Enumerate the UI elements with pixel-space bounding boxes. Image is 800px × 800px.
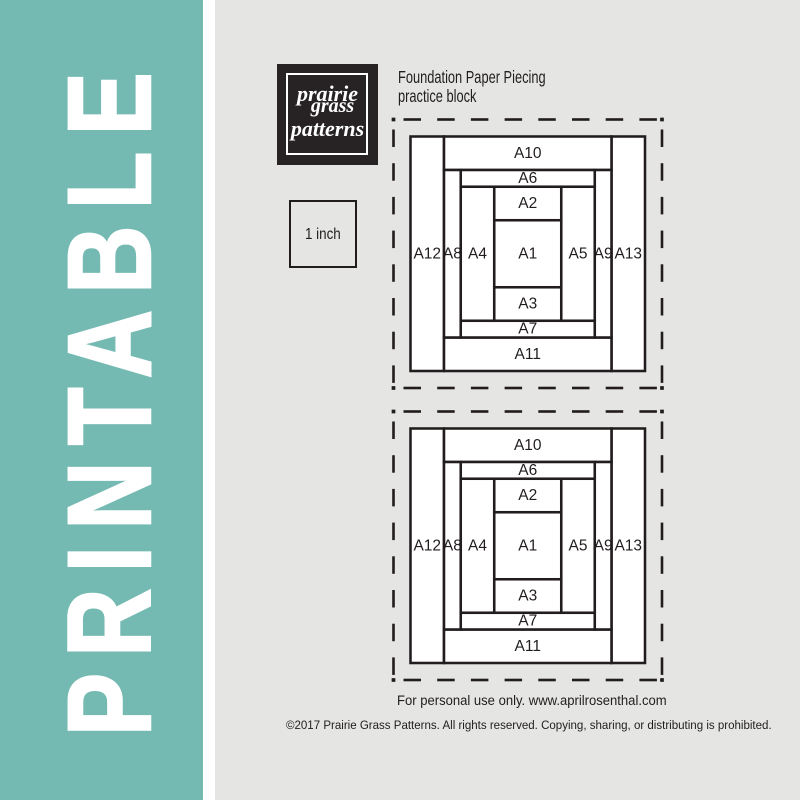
svg-text:A11: A11 bbox=[515, 346, 541, 363]
svg-text:A7: A7 bbox=[518, 612, 537, 629]
svg-text:A2: A2 bbox=[518, 195, 537, 212]
svg-text:A3: A3 bbox=[518, 296, 537, 313]
svg-text:A12: A12 bbox=[413, 245, 441, 262]
svg-text:A1: A1 bbox=[518, 537, 537, 554]
svg-text:A9: A9 bbox=[594, 537, 613, 554]
svg-text:A5: A5 bbox=[569, 537, 588, 554]
svg-text:A10: A10 bbox=[514, 145, 542, 162]
svg-text:A5: A5 bbox=[569, 245, 588, 262]
svg-text:A13: A13 bbox=[614, 245, 642, 262]
svg-text:A4: A4 bbox=[468, 245, 487, 262]
svg-text:A12: A12 bbox=[413, 537, 441, 554]
svg-text:A9: A9 bbox=[594, 245, 613, 262]
svg-text:A11: A11 bbox=[515, 637, 541, 654]
svg-text:A6: A6 bbox=[518, 170, 537, 187]
svg-text:A6: A6 bbox=[518, 461, 537, 478]
svg-text:A3: A3 bbox=[518, 587, 537, 604]
svg-text:A13: A13 bbox=[614, 537, 642, 554]
svg-text:A8: A8 bbox=[443, 537, 462, 554]
svg-text:A1: A1 bbox=[518, 245, 537, 262]
svg-text:A7: A7 bbox=[518, 321, 537, 338]
svg-text:A4: A4 bbox=[468, 537, 487, 554]
svg-text:A8: A8 bbox=[443, 245, 462, 262]
svg-text:A2: A2 bbox=[518, 487, 537, 504]
svg-text:A10: A10 bbox=[514, 436, 542, 453]
